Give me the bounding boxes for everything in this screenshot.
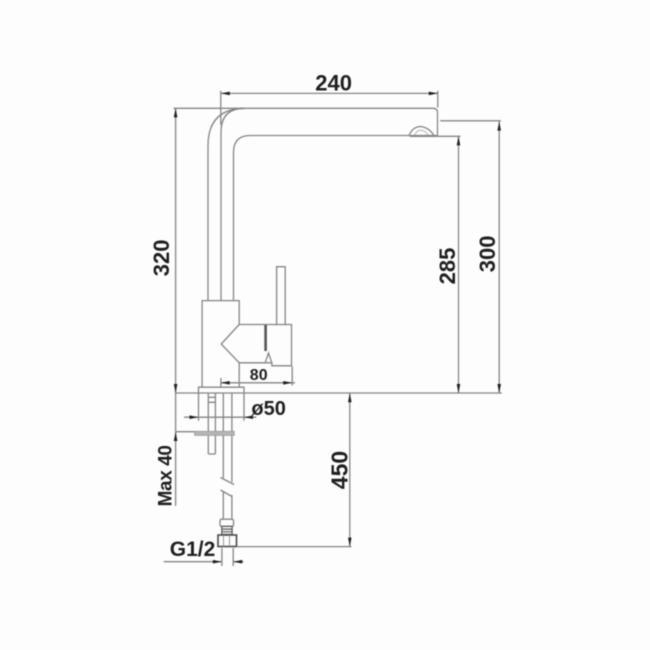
svg-text:240: 240 — [315, 70, 352, 95]
svg-text:80: 80 — [250, 367, 268, 384]
svg-text:G1/2: G1/2 — [170, 538, 216, 561]
svg-text:285: 285 — [435, 248, 460, 285]
svg-text:Max 40: Max 40 — [156, 445, 177, 506]
svg-text:320: 320 — [149, 240, 174, 277]
svg-text:300: 300 — [475, 236, 500, 273]
svg-text:ø50: ø50 — [251, 398, 285, 420]
svg-text:450: 450 — [327, 451, 353, 489]
